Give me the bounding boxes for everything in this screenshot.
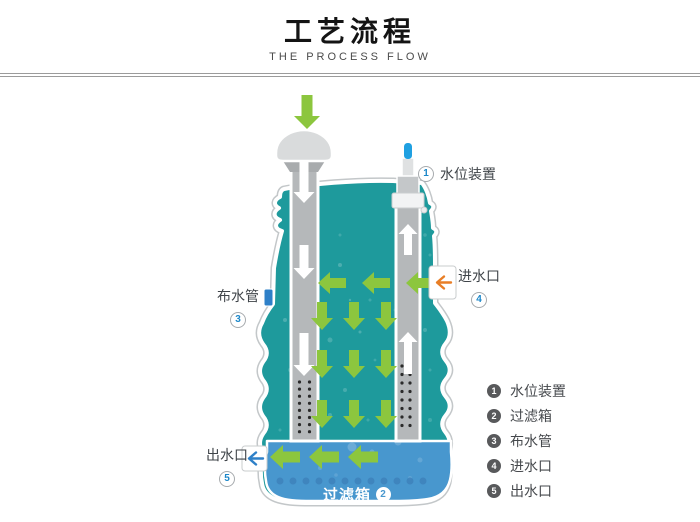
- legend-item-label: 过滤箱: [510, 406, 552, 426]
- device-stem: [402, 158, 414, 177]
- legend-item-filter-box: 2 过滤箱: [487, 408, 566, 423]
- callout-water-level-label: 水位装置: [440, 164, 496, 184]
- legend-item-outlet: 5 出水口: [487, 483, 566, 498]
- legend-number-badge: 5: [487, 484, 501, 498]
- device-blue-tip: [404, 143, 412, 159]
- device-upper-block: [397, 176, 419, 194]
- tank-diagram-svg: [0, 0, 700, 522]
- legend-number-badge: 1: [487, 384, 501, 398]
- callout-distribution-pipe-number: 3: [230, 312, 246, 328]
- callout-outlet-number: 5: [219, 471, 235, 487]
- legend-number-badge: 4: [487, 459, 501, 473]
- device-collar: [392, 193, 424, 208]
- callout-inlet: 进水口 4: [450, 266, 508, 308]
- page: 工艺流程 THE PROCESS FLOW: [0, 0, 700, 522]
- callout-outlet: 出水口 5: [196, 445, 258, 487]
- legend-item-label: 布水管: [510, 431, 552, 451]
- filter-box-caption-label: 过滤箱: [323, 484, 371, 505]
- callout-distribution-pipe: 布水管 3: [206, 286, 270, 328]
- legend-item-label: 水位装置: [510, 381, 566, 401]
- filter-box-caption-number: 2: [376, 487, 391, 502]
- callout-distribution-pipe-label: 布水管: [217, 286, 259, 306]
- device-knob: [421, 207, 427, 213]
- legend-number-badge: 2: [487, 409, 501, 423]
- legend-item-inlet: 4 进水口: [487, 458, 566, 473]
- legend: 1 水位装置 2 过滤箱 3 布水管 4 进水口 5 出水口: [487, 383, 566, 508]
- callout-outlet-label: 出水口: [206, 445, 248, 465]
- legend-item-water-level: 1 水位装置: [487, 383, 566, 398]
- legend-item-distribution-pipe: 3 布水管: [487, 433, 566, 448]
- callout-water-level-number: 1: [418, 166, 434, 182]
- top-feed-arrow: [294, 95, 320, 129]
- callout-water-level: 1 水位装置: [418, 164, 496, 184]
- filter-box-caption: 过滤箱 2: [281, 484, 433, 505]
- legend-number-badge: 3: [487, 434, 501, 448]
- inlet-pipe-cap: [276, 130, 332, 161]
- callout-inlet-label: 进水口: [458, 266, 500, 286]
- legend-item-label: 出水口: [510, 481, 552, 501]
- callout-inlet-number: 4: [471, 292, 487, 308]
- legend-item-label: 进水口: [510, 456, 552, 476]
